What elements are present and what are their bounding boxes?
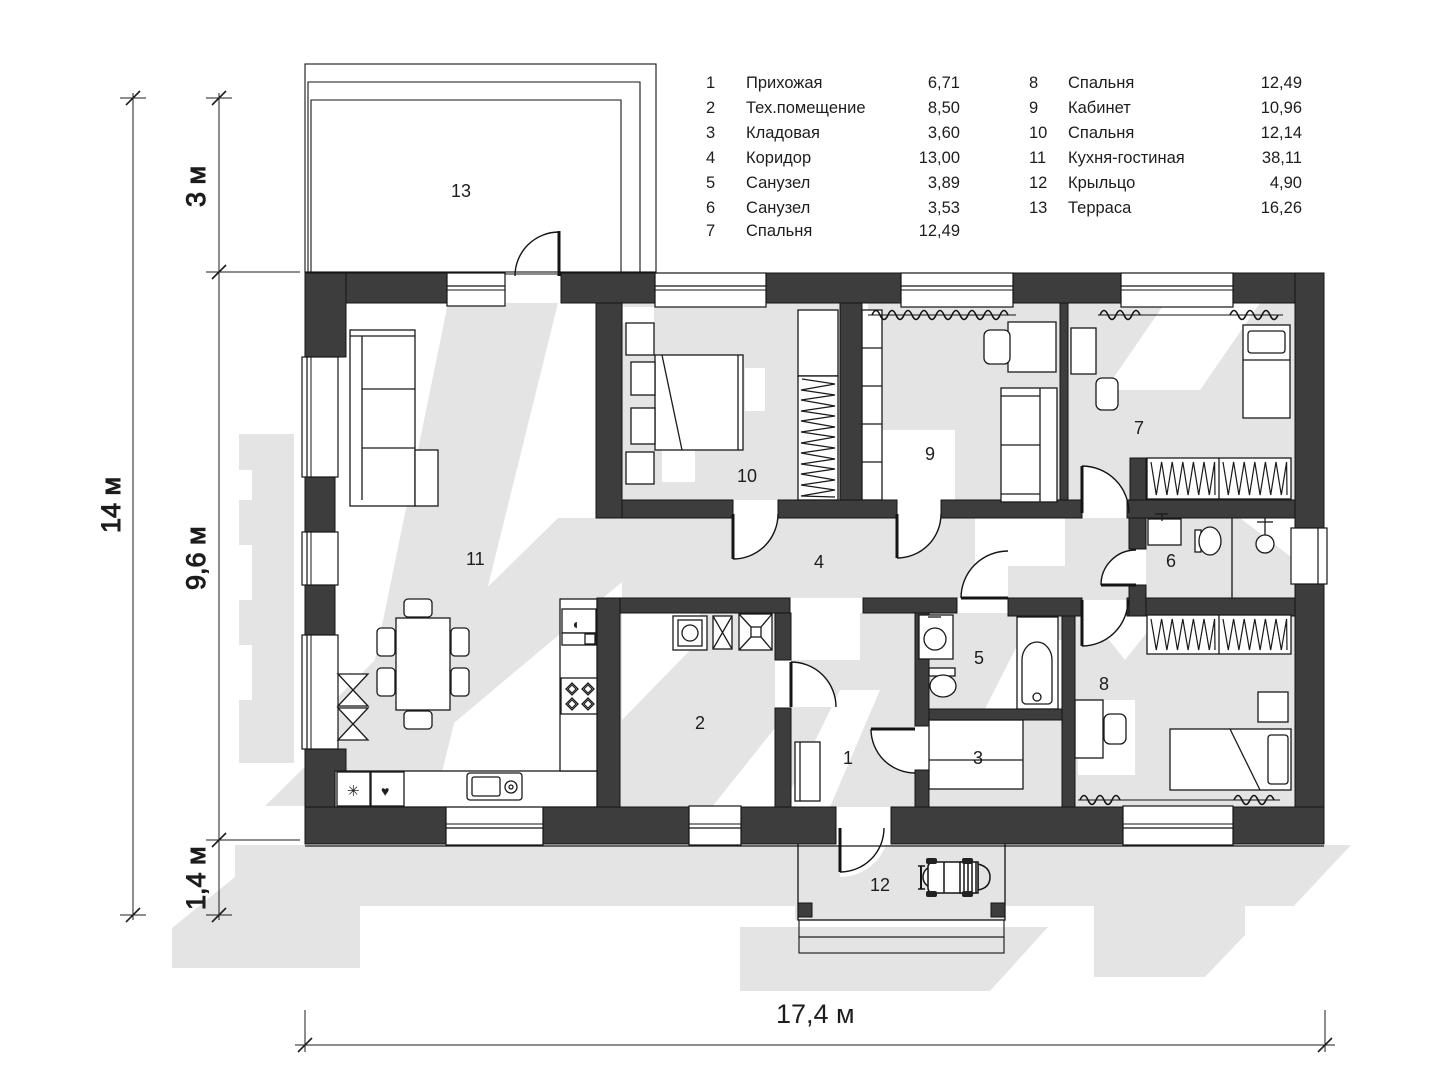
- svg-text:1,4 м: 1,4 м: [181, 846, 211, 910]
- svg-text:4,90: 4,90: [1270, 174, 1302, 192]
- svg-text:12,49: 12,49: [919, 222, 960, 240]
- svg-text:Терраса: Терраса: [1068, 199, 1132, 217]
- svg-text:13,00: 13,00: [919, 149, 960, 167]
- svg-text:10,96: 10,96: [1261, 99, 1302, 117]
- svg-text:5: 5: [974, 648, 984, 668]
- svg-text:17,4 м: 17,4 м: [776, 999, 855, 1029]
- svg-text:3 м: 3 м: [181, 166, 211, 207]
- svg-text:Санузел: Санузел: [746, 199, 810, 217]
- svg-text:3: 3: [706, 124, 715, 142]
- svg-text:Спальня: Спальня: [1068, 124, 1134, 142]
- svg-text:3,53: 3,53: [928, 199, 960, 217]
- svg-text:14 м: 14 м: [96, 477, 126, 533]
- svg-text:7: 7: [1134, 418, 1144, 438]
- svg-text:11: 11: [466, 549, 485, 569]
- svg-text:Спальня: Спальня: [746, 222, 812, 240]
- svg-text:4: 4: [706, 149, 715, 167]
- svg-text:Тех.помещение: Тех.помещение: [746, 99, 866, 117]
- svg-text:1: 1: [843, 748, 853, 768]
- svg-text:♥: ♥: [381, 783, 389, 799]
- svg-text:Прихожая: Прихожая: [746, 74, 822, 92]
- svg-text:Кабинет: Кабинет: [1068, 99, 1131, 117]
- svg-text:16,26: 16,26: [1261, 199, 1302, 217]
- svg-text:12,49: 12,49: [1261, 74, 1302, 92]
- svg-text:9,6 м: 9,6 м: [181, 526, 211, 590]
- svg-text:◖: ◖: [571, 616, 579, 632]
- svg-text:13: 13: [451, 181, 471, 201]
- svg-text:1: 1: [706, 74, 715, 92]
- svg-text:6: 6: [706, 199, 715, 217]
- svg-text:12: 12: [870, 875, 890, 895]
- svg-text:4: 4: [814, 552, 824, 572]
- svg-text:✳: ✳: [347, 783, 360, 800]
- svg-text:7: 7: [706, 222, 715, 240]
- svg-text:13: 13: [1029, 199, 1047, 217]
- svg-text:3: 3: [973, 748, 983, 768]
- svg-text:Спальня: Спальня: [1068, 74, 1134, 92]
- svg-text:9: 9: [925, 444, 935, 464]
- svg-text:6,71: 6,71: [928, 74, 960, 92]
- svg-text:9: 9: [1029, 99, 1038, 117]
- svg-text:12,14: 12,14: [1261, 124, 1302, 142]
- svg-text:Кладовая: Кладовая: [746, 124, 820, 142]
- svg-text:5: 5: [706, 174, 715, 192]
- svg-text:3,60: 3,60: [928, 124, 960, 142]
- svg-text:8,50: 8,50: [928, 99, 960, 117]
- svg-text:10: 10: [1029, 124, 1047, 142]
- svg-text:Кухня-гостиная: Кухня-гостиная: [1068, 149, 1185, 167]
- svg-text:8: 8: [1099, 674, 1109, 694]
- svg-text:10: 10: [737, 466, 757, 486]
- svg-text:3,89: 3,89: [928, 174, 960, 192]
- svg-text:38,11: 38,11: [1262, 149, 1302, 167]
- svg-text:8: 8: [1029, 74, 1038, 92]
- svg-text:Коридор: Коридор: [746, 149, 811, 167]
- svg-text:Санузел: Санузел: [746, 174, 810, 192]
- svg-text:6: 6: [1166, 551, 1176, 571]
- svg-text:Крыльцо: Крыльцо: [1068, 174, 1135, 192]
- svg-text:12: 12: [1029, 174, 1047, 192]
- svg-text:11: 11: [1029, 149, 1046, 167]
- svg-text:2: 2: [695, 713, 705, 733]
- svg-text:2: 2: [706, 99, 715, 117]
